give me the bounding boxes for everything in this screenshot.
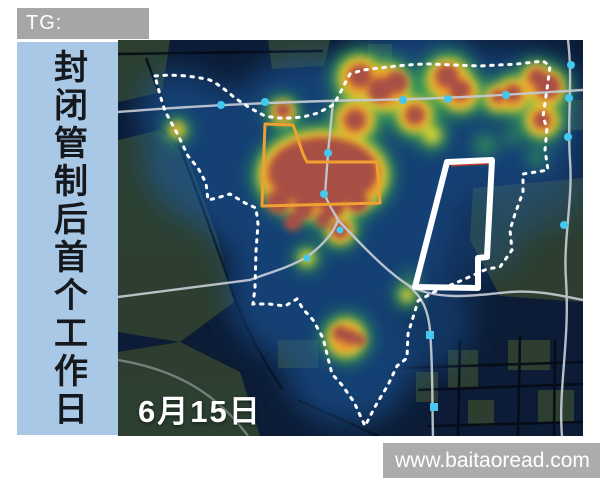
map-canvas	[118, 40, 583, 436]
watermark-bar: www.baitaoread.com	[383, 443, 600, 478]
tg-banner: TG: MYYJJPP	[17, 8, 149, 39]
screenshot-page: TG: MYYJJPP 封闭管制后首个工作日	[0, 0, 600, 480]
side-title-banner: 封闭管制后首个工作日	[17, 42, 118, 435]
date-label: 6月15日	[138, 386, 262, 431]
vertical-title: 封闭管制后首个工作日	[51, 49, 85, 429]
heatmap-map: 6月15日	[118, 40, 583, 436]
watermark-url: www.baitaoread.com	[395, 449, 590, 472]
